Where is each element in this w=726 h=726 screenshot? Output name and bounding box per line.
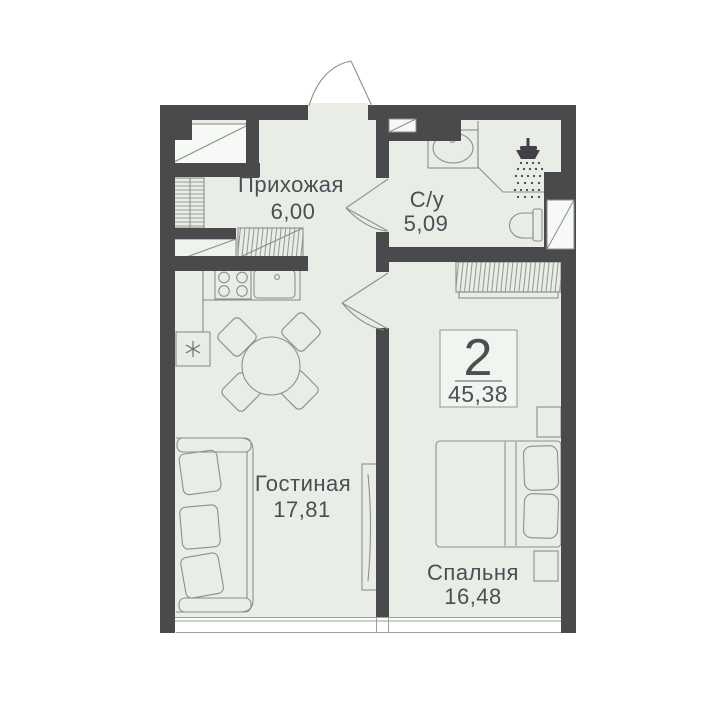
vent-shaft — [547, 200, 574, 249]
apartment-badge: 2 45,38 — [440, 329, 517, 407]
wall-left — [160, 105, 175, 633]
bed — [436, 441, 561, 547]
bedroom-name: Спальня — [427, 560, 519, 585]
dining-table — [242, 337, 300, 395]
wall-partition — [376, 328, 389, 617]
floor-plan-canvas: Прихожая 6,00 С/у 5,09 Гостиная 17,81 Сп… — [0, 0, 726, 726]
living-area: 17,81 — [273, 497, 331, 522]
bedroom-area: 16,48 — [444, 584, 502, 609]
entrance-door — [309, 61, 372, 106]
badge-total-area: 45,38 — [448, 381, 508, 407]
hallway-name: Прихожая — [238, 172, 344, 197]
living-name: Гостиная — [255, 471, 351, 496]
entrance-threshold — [308, 103, 368, 121]
vent-shaft — [389, 119, 416, 132]
sofa — [176, 438, 253, 612]
floor-plan: Прихожая 6,00 С/у 5,09 Гостиная 17,81 Сп… — [0, 0, 726, 726]
wardrobe — [238, 228, 303, 258]
coat-rack — [171, 178, 204, 228]
bathroom-area: 5,09 — [404, 211, 449, 236]
window-band — [175, 617, 561, 633]
hallway-area: 6,00 — [271, 199, 316, 224]
wall-kitchen — [160, 256, 308, 271]
badge-room-count: 2 — [464, 329, 493, 387]
wall-bathroom-bottom — [376, 247, 576, 262]
wall-top-right — [368, 105, 576, 120]
bathroom-name: С/у — [410, 187, 445, 212]
